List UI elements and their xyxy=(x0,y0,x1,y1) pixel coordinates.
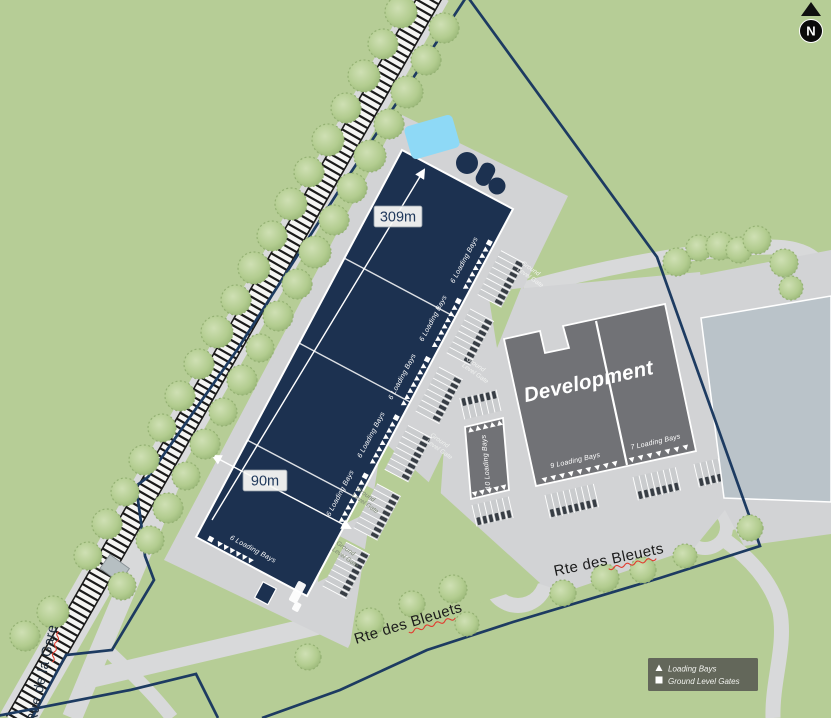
tree xyxy=(337,173,367,203)
tree xyxy=(108,572,136,600)
tree xyxy=(737,515,763,541)
width-dimension-label: 90m xyxy=(251,474,279,490)
tree xyxy=(348,60,380,92)
tree xyxy=(354,140,386,172)
length-dimension-label: 309m xyxy=(380,210,416,226)
tree xyxy=(374,109,404,139)
legend: Loading Bays Ground Level Gates xyxy=(648,658,758,691)
tree xyxy=(10,621,40,651)
tree xyxy=(295,644,321,670)
north-label: N xyxy=(806,24,815,39)
tree xyxy=(190,429,220,459)
tree xyxy=(111,478,139,506)
tree xyxy=(743,226,771,254)
tree xyxy=(184,349,214,379)
tree xyxy=(74,542,102,570)
tree xyxy=(246,334,274,362)
tree xyxy=(257,221,287,251)
tree xyxy=(148,414,176,442)
site-plan-page: Development 309m 90m 6 Loading Bays6 Loa… xyxy=(0,0,831,718)
legend-label-ground-level-gates: Ground Level Gates xyxy=(668,677,740,686)
tree xyxy=(209,398,237,426)
tree xyxy=(227,365,257,395)
tree xyxy=(439,575,467,603)
tree xyxy=(312,124,344,156)
tree xyxy=(391,76,423,108)
tree xyxy=(172,462,200,490)
tree xyxy=(294,157,324,187)
tree xyxy=(319,205,349,235)
site-plan-map: Development 309m 90m 6 Loading Bays6 Loa… xyxy=(0,0,831,718)
tree xyxy=(429,13,459,43)
tree xyxy=(165,381,195,411)
tree xyxy=(92,509,122,539)
tree xyxy=(263,301,293,331)
tree xyxy=(299,236,331,268)
tree xyxy=(550,580,576,606)
tree xyxy=(275,188,307,220)
tree xyxy=(770,249,798,277)
legend-label-loading-bays: Loading Bays xyxy=(668,665,716,674)
legend-box xyxy=(648,658,758,691)
tree xyxy=(221,285,251,315)
tree xyxy=(136,526,164,554)
tree xyxy=(238,252,270,284)
tree xyxy=(368,29,398,59)
tree xyxy=(673,544,697,568)
neighbor-building xyxy=(701,296,831,502)
tree xyxy=(411,45,441,75)
ground-level-gate-icon xyxy=(656,677,663,684)
tree xyxy=(201,316,233,348)
tree xyxy=(331,93,361,123)
tree xyxy=(282,269,312,299)
tree xyxy=(37,596,69,628)
tree xyxy=(153,493,183,523)
tree xyxy=(129,445,159,475)
tree xyxy=(779,276,803,300)
